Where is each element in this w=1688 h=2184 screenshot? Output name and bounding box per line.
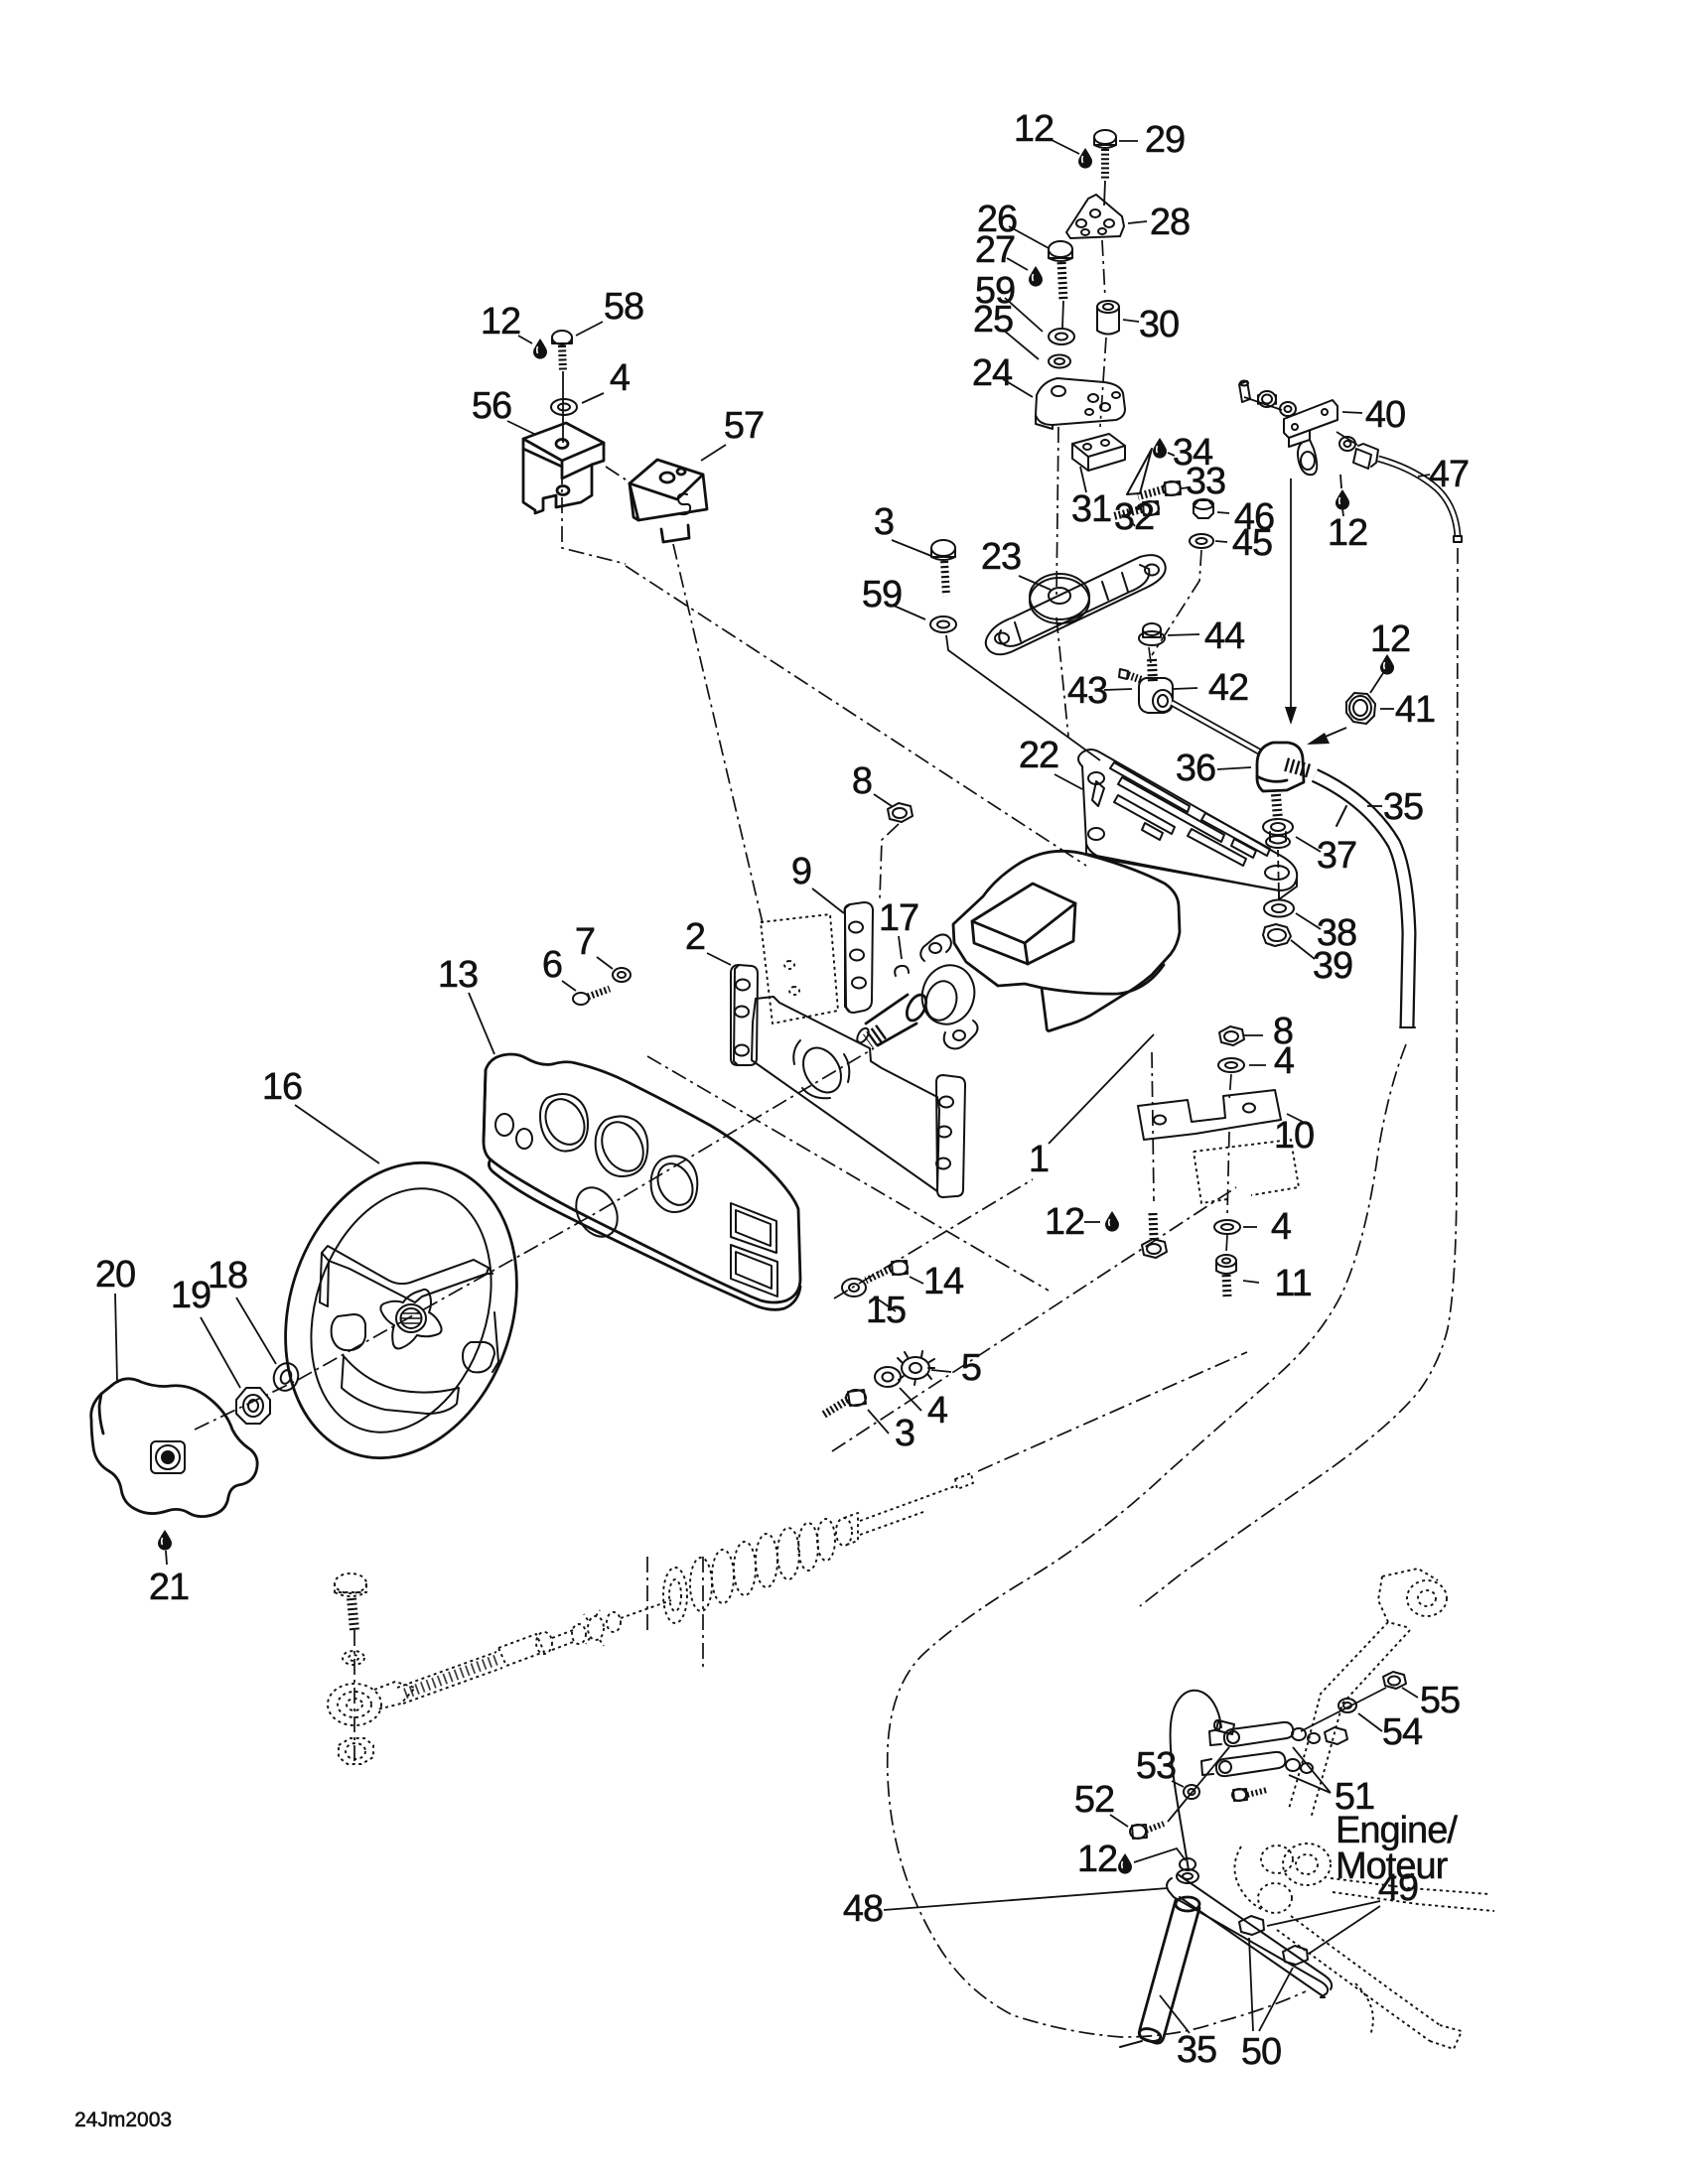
svg-text:50: 50 xyxy=(1241,2031,1281,2073)
svg-text:21: 21 xyxy=(149,1567,189,1608)
svg-text:19: 19 xyxy=(171,1275,211,1316)
svg-text:40: 40 xyxy=(1365,394,1405,436)
svg-text:27: 27 xyxy=(975,229,1015,271)
svg-text:4: 4 xyxy=(927,1390,948,1432)
svg-text:18: 18 xyxy=(208,1255,247,1297)
svg-text:49: 49 xyxy=(1378,1867,1418,1909)
svg-text:8: 8 xyxy=(852,760,872,802)
svg-text:17: 17 xyxy=(879,897,918,939)
svg-text:47: 47 xyxy=(1429,454,1469,495)
svg-text:16: 16 xyxy=(262,1066,302,1108)
svg-text:53: 53 xyxy=(1136,1745,1176,1787)
svg-text:33: 33 xyxy=(1186,461,1225,502)
svg-text:55: 55 xyxy=(1420,1680,1460,1721)
svg-text:56: 56 xyxy=(472,385,511,427)
svg-text:59: 59 xyxy=(862,574,902,615)
svg-text:12: 12 xyxy=(1014,108,1054,150)
svg-text:24: 24 xyxy=(972,352,1013,394)
svg-text:43: 43 xyxy=(1067,670,1107,712)
svg-text:5: 5 xyxy=(961,1347,981,1389)
svg-text:41: 41 xyxy=(1395,689,1435,731)
svg-text:39: 39 xyxy=(1313,945,1352,987)
svg-text:12: 12 xyxy=(1370,618,1410,660)
svg-text:4: 4 xyxy=(610,357,631,399)
svg-text:58: 58 xyxy=(604,286,643,328)
svg-text:57: 57 xyxy=(724,405,764,447)
svg-text:7: 7 xyxy=(575,921,595,963)
svg-text:31: 31 xyxy=(1071,488,1111,530)
svg-text:12: 12 xyxy=(481,301,520,342)
svg-text:35: 35 xyxy=(1383,786,1423,828)
svg-text:12: 12 xyxy=(1077,1839,1117,1880)
svg-text:20: 20 xyxy=(95,1254,135,1296)
svg-text:29: 29 xyxy=(1145,119,1185,161)
svg-text:4: 4 xyxy=(1271,1206,1292,1248)
svg-text:37: 37 xyxy=(1317,835,1356,877)
svg-text:3: 3 xyxy=(874,501,894,543)
svg-text:15: 15 xyxy=(866,1290,906,1331)
svg-text:48: 48 xyxy=(843,1888,883,1930)
svg-text:1: 1 xyxy=(1029,1139,1049,1180)
svg-text:45: 45 xyxy=(1232,522,1272,564)
svg-text:30: 30 xyxy=(1139,304,1179,345)
svg-text:35: 35 xyxy=(1177,2029,1216,2071)
svg-text:3: 3 xyxy=(895,1413,914,1454)
svg-text:4: 4 xyxy=(1274,1040,1295,1082)
svg-text:52: 52 xyxy=(1074,1779,1114,1821)
svg-text:44: 44 xyxy=(1204,615,1245,657)
svg-text:32: 32 xyxy=(1114,496,1154,538)
svg-text:54: 54 xyxy=(1382,1711,1423,1753)
svg-text:24Jm2003: 24Jm2003 xyxy=(74,2109,172,2131)
svg-text:25: 25 xyxy=(973,299,1013,341)
svg-text:36: 36 xyxy=(1176,748,1215,789)
svg-text:9: 9 xyxy=(791,851,811,892)
svg-text:22: 22 xyxy=(1019,735,1058,776)
svg-text:10: 10 xyxy=(1274,1115,1314,1157)
svg-text:12: 12 xyxy=(1328,512,1367,554)
svg-text:28: 28 xyxy=(1150,202,1190,243)
svg-text:2: 2 xyxy=(685,916,705,958)
svg-text:42: 42 xyxy=(1208,667,1248,709)
svg-text:11: 11 xyxy=(1274,1263,1311,1304)
svg-text:14: 14 xyxy=(923,1261,964,1302)
svg-text:6: 6 xyxy=(542,944,562,986)
svg-text:12: 12 xyxy=(1045,1201,1084,1243)
svg-text:13: 13 xyxy=(438,954,478,996)
svg-text:23: 23 xyxy=(981,536,1021,578)
